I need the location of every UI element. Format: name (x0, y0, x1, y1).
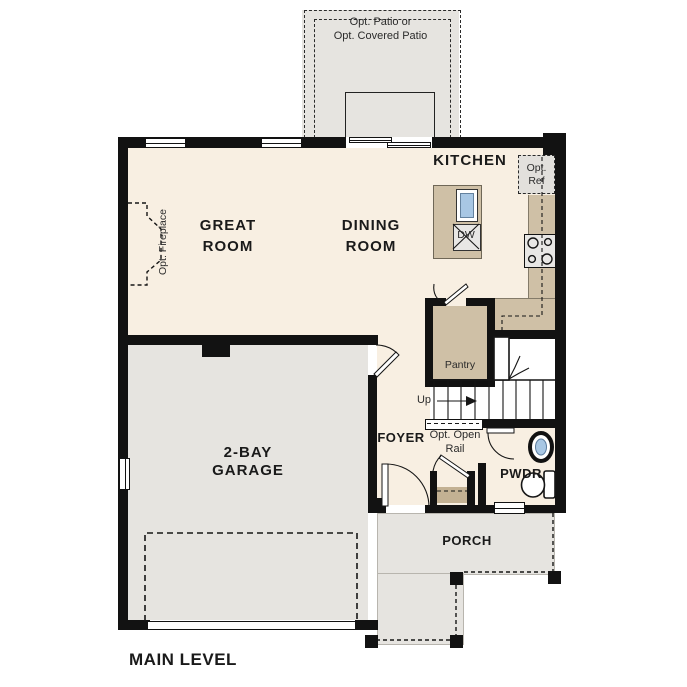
room-label-foyer: FOYER (375, 430, 427, 445)
stair-rail (494, 337, 509, 380)
stair-up-label: Up (413, 394, 435, 406)
toilet-tank (544, 471, 555, 498)
room-label-great-line2: ROOM (178, 238, 278, 255)
stair-treads (434, 380, 543, 419)
floor-plan: Opt. Ref (0, 0, 687, 687)
pwdr-sink-basin (536, 439, 547, 455)
room-label-kitchen: KITCHEN (428, 152, 512, 169)
plan-title: MAIN LEVEL (129, 650, 289, 670)
closet-door-leaf (439, 455, 470, 478)
room-label-dining-line2: ROOM (321, 238, 421, 255)
pantry-door-swing (434, 284, 445, 304)
pwdr-door-leaf (487, 428, 514, 433)
room-label-great-line1: GREAT (178, 217, 278, 234)
counter-dashed-line (502, 157, 542, 330)
pwdr-door-swing (488, 433, 514, 459)
open-rail-label-line1: Opt. Open (423, 429, 487, 441)
stove-burners (528, 238, 552, 264)
garage-clearance-dashed (145, 533, 357, 621)
room-label-porch: PORCH (432, 533, 502, 548)
garage-entry-door-swing (376, 345, 397, 353)
dishwasher-label: DW (453, 229, 479, 241)
stair-winders (509, 356, 529, 379)
garage-entry-door-leaf (374, 352, 399, 377)
room-label-pwdr: PWDR (497, 466, 545, 481)
opt-fireplace-label: Opt. Fireplace (157, 192, 169, 292)
room-label-dining-line1: DINING (321, 217, 421, 234)
room-label-garage-line1: 2-BAY (200, 444, 296, 461)
plan-linework (0, 0, 687, 687)
front-door-swing (386, 464, 429, 507)
room-label-garage-line2: GARAGE (200, 462, 296, 479)
front-door-leaf (382, 464, 388, 506)
patio-label-line2: Opt. Covered Patio (302, 30, 459, 42)
patio-label-line1: Opt. Patio or (302, 16, 459, 28)
pantry-door-leaf (444, 284, 468, 305)
open-rail-label-line2: Rail (423, 443, 487, 455)
pantry-label: Pantry (433, 359, 487, 371)
